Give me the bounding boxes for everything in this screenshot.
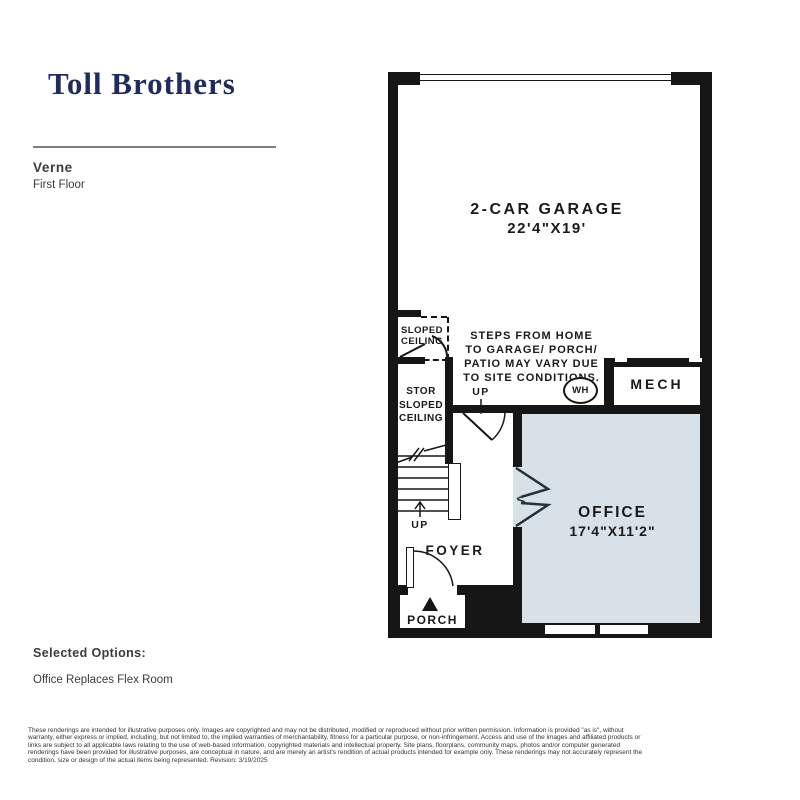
foyer-label: FOYER [424, 544, 486, 558]
water-heater-label: WH [572, 385, 589, 396]
selected-options-title: Selected Options: [33, 646, 146, 660]
disclaimer-line: links are subject to all applicable laws… [28, 742, 776, 749]
steps-note: STEPS FROM HOME TO GARAGE/ PORCH/ PATIO … [454, 329, 609, 385]
garage-name: 2-CAR GARAGE [422, 200, 672, 219]
up-arrow-icon [415, 502, 425, 517]
page: Toll Brothers Verne First Floor [0, 0, 800, 800]
storage-label: STOR SLOPED CEILING [394, 385, 448, 426]
sloped-ceiling-label: SLOPED CEILING [394, 326, 450, 347]
office-dimensions: 17'4"X11'2" [513, 522, 712, 540]
disclaimer-line: These renderings are intended for illust… [28, 727, 776, 734]
wall-segment [700, 72, 712, 638]
window [545, 625, 595, 634]
garage-label: 2-CAR GARAGE 22'4"X19' [422, 200, 672, 238]
sloped-ceiling-dashed-line [396, 359, 448, 361]
wall-segment [513, 413, 522, 467]
front-door-opening [408, 585, 457, 595]
disclaimer-line: renderings have been provided for illust… [28, 749, 776, 756]
toll-brothers-logo: Toll Brothers [48, 66, 236, 102]
window [600, 625, 648, 634]
stair-break-line [393, 444, 450, 464]
header-divider [33, 146, 276, 148]
floor-label: First Floor [33, 179, 85, 191]
up-label-garage: UP [467, 387, 495, 398]
wall-segment [513, 527, 522, 624]
selected-option-item: Office Replaces Flex Room [33, 674, 173, 686]
wall-segment [388, 310, 421, 317]
mech-label: MECH [614, 377, 700, 391]
front-door-leaf [406, 547, 414, 588]
water-heater-symbol: WH [563, 377, 598, 404]
garage-door [420, 74, 671, 81]
staircase [398, 456, 448, 511]
staircase-rail [448, 463, 461, 520]
disclaimer-line: warranty, either express or implied, inc… [28, 734, 776, 741]
office-label: OFFICE 17'4"X11'2" [513, 504, 712, 540]
wall-opening [689, 358, 702, 362]
office-name: OFFICE [513, 504, 712, 522]
up-label-stairs: UP [404, 520, 436, 531]
garage-dimensions: 22'4"X19' [422, 219, 672, 238]
disclaimer: These renderings are intended for illust… [28, 727, 776, 764]
wall-segment [453, 405, 514, 413]
sloped-ceiling-dashed-line [421, 316, 447, 318]
door-swing [463, 413, 505, 440]
disclaimer-line: condition, size or design of the actual … [28, 757, 776, 764]
wall-opening [615, 358, 627, 362]
porch-label: PORCH [400, 614, 465, 626]
plan-name: Verne [33, 160, 73, 175]
